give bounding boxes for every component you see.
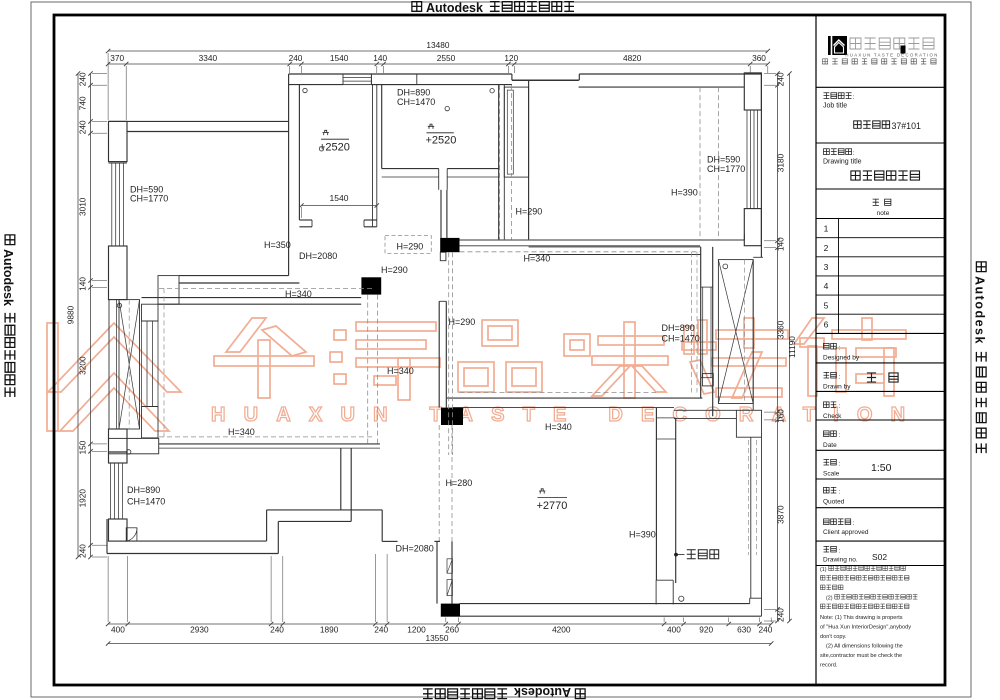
svg-text:1: 1 — [824, 224, 829, 234]
svg-text:(2) All dimensions following t: (2) All dimensions following the — [826, 644, 903, 650]
svg-text:H=340: H=340 — [545, 422, 572, 432]
svg-text:3010: 3010 — [78, 197, 88, 216]
svg-text:920: 920 — [699, 625, 713, 635]
svg-text:Note: (1) This drawing is prop: Note: (1) This drawing is properts — [820, 615, 903, 621]
svg-text::: : — [838, 374, 840, 381]
svg-text:1540: 1540 — [330, 193, 349, 203]
svg-text:2550: 2550 — [437, 53, 456, 63]
svg-text:Drawing no.: Drawing no. — [823, 557, 858, 564]
svg-text:record.: record. — [820, 663, 838, 669]
svg-text:4: 4 — [824, 281, 829, 291]
svg-text:240: 240 — [78, 120, 88, 134]
svg-text:1540: 1540 — [330, 53, 349, 63]
svg-text:140: 140 — [78, 277, 88, 291]
svg-text:4200: 4200 — [552, 625, 571, 635]
svg-text:of "Hua Xun InteriorDesign",an: of "Hua Xun InteriorDesign",anybody — [820, 625, 911, 631]
svg-text:13480: 13480 — [426, 40, 449, 50]
svg-text:H=290: H=290 — [449, 317, 476, 327]
svg-text:13550: 13550 — [425, 633, 448, 643]
svg-text:H=290: H=290 — [516, 207, 543, 217]
svg-text:140: 140 — [776, 237, 786, 251]
svg-text:140: 140 — [373, 53, 387, 63]
svg-text::: : — [838, 489, 840, 496]
svg-text::: : — [838, 403, 840, 410]
svg-text:DH=890: DH=890 — [662, 323, 695, 333]
svg-text:1890: 1890 — [320, 625, 339, 635]
svg-text:Autodesk: Autodesk — [1, 249, 15, 306]
svg-text::: : — [838, 432, 840, 439]
svg-text:H=290: H=290 — [381, 265, 408, 275]
svg-text:CH=1470: CH=1470 — [127, 497, 165, 507]
svg-text:3: 3 — [824, 262, 829, 272]
svg-text:H=340: H=340 — [285, 289, 312, 299]
svg-text:site,contractor must be check: site,contractor must be check the — [820, 653, 902, 659]
svg-text:37#101: 37#101 — [892, 121, 921, 131]
svg-text:DH=2080: DH=2080 — [396, 544, 434, 554]
svg-text:740: 740 — [78, 96, 88, 110]
svg-text:Designed by: Designed by — [823, 355, 860, 362]
svg-text:Autodesk: Autodesk — [426, 1, 483, 15]
svg-text:(2): (2) — [826, 596, 833, 602]
svg-text:H=390: H=390 — [629, 530, 656, 540]
svg-text:CH=1470: CH=1470 — [662, 334, 700, 344]
svg-text:1920: 1920 — [78, 489, 88, 508]
svg-text::: : — [838, 548, 840, 555]
svg-text:CH=1770: CH=1770 — [707, 164, 745, 174]
svg-text:3180: 3180 — [776, 153, 786, 172]
svg-text:HUAXUN TASTE DECORATION: HUAXUN TASTE DECORATION — [845, 53, 938, 58]
svg-text::: : — [853, 520, 855, 527]
svg-text:note: note — [877, 210, 890, 217]
svg-text::: : — [838, 461, 840, 468]
svg-text:Autodesk: Autodesk — [973, 276, 987, 345]
svg-text:4820: 4820 — [623, 53, 642, 63]
svg-text:1200: 1200 — [407, 625, 426, 635]
svg-text:Client approved: Client approved — [823, 529, 869, 536]
svg-text:H=340: H=340 — [387, 366, 414, 376]
svg-text:DH=890: DH=890 — [127, 485, 160, 495]
svg-text::: : — [853, 94, 855, 101]
svg-text:Drawn by: Drawn by — [823, 384, 851, 391]
svg-text:3870: 3870 — [776, 505, 786, 524]
svg-text:H=340: H=340 — [524, 254, 551, 264]
svg-text:Date: Date — [823, 442, 837, 449]
svg-text:H=280: H=280 — [446, 478, 473, 488]
svg-text:Check: Check — [823, 413, 842, 420]
svg-text:Job title: Job title — [823, 103, 847, 110]
svg-text:(1): (1) — [820, 567, 827, 573]
svg-text:360: 360 — [752, 53, 766, 63]
svg-text::: : — [838, 345, 840, 352]
svg-text:H=390: H=390 — [671, 188, 698, 198]
svg-text:1:50: 1:50 — [871, 462, 892, 474]
svg-text:don't copy.: don't copy. — [820, 634, 847, 640]
svg-text:H=290: H=290 — [397, 242, 424, 252]
svg-text:Scale: Scale — [823, 471, 840, 478]
svg-text:240: 240 — [289, 53, 303, 63]
svg-text:DH=2080: DH=2080 — [299, 251, 337, 261]
svg-text:H=350: H=350 — [264, 240, 291, 250]
svg-text:S02: S02 — [872, 552, 887, 562]
svg-text:400: 400 — [111, 625, 125, 635]
svg-text:CH=1770: CH=1770 — [130, 194, 168, 204]
svg-text:9880: 9880 — [66, 305, 76, 324]
svg-text:150: 150 — [78, 440, 88, 454]
svg-text:Drawing title: Drawing title — [823, 159, 862, 166]
svg-text:240: 240 — [270, 625, 284, 635]
svg-text:240: 240 — [374, 625, 388, 635]
svg-text:+2770: +2770 — [537, 500, 568, 512]
svg-text:630: 630 — [737, 625, 751, 635]
svg-text:3200: 3200 — [78, 356, 88, 375]
svg-text:240: 240 — [78, 72, 88, 86]
svg-text:240: 240 — [758, 625, 772, 635]
svg-text:400: 400 — [667, 625, 681, 635]
svg-text:CH=1470: CH=1470 — [397, 97, 435, 107]
svg-text:2930: 2930 — [190, 625, 209, 635]
svg-text:370: 370 — [110, 53, 124, 63]
svg-text:6: 6 — [824, 319, 829, 329]
svg-text:5: 5 — [824, 300, 829, 310]
svg-text:Autodesk: Autodesk — [514, 685, 571, 699]
svg-text:3340: 3340 — [199, 53, 218, 63]
svg-text:120: 120 — [504, 53, 518, 63]
svg-text:+2520: +2520 — [426, 135, 457, 147]
svg-text:DH=590: DH=590 — [707, 155, 740, 165]
svg-text:2: 2 — [824, 243, 829, 253]
svg-text:Quoted: Quoted — [823, 499, 845, 506]
svg-text:H=340: H=340 — [228, 427, 255, 437]
svg-text:3360: 3360 — [776, 320, 786, 339]
svg-text:11190: 11190 — [787, 336, 797, 358]
svg-text::: : — [853, 150, 855, 157]
